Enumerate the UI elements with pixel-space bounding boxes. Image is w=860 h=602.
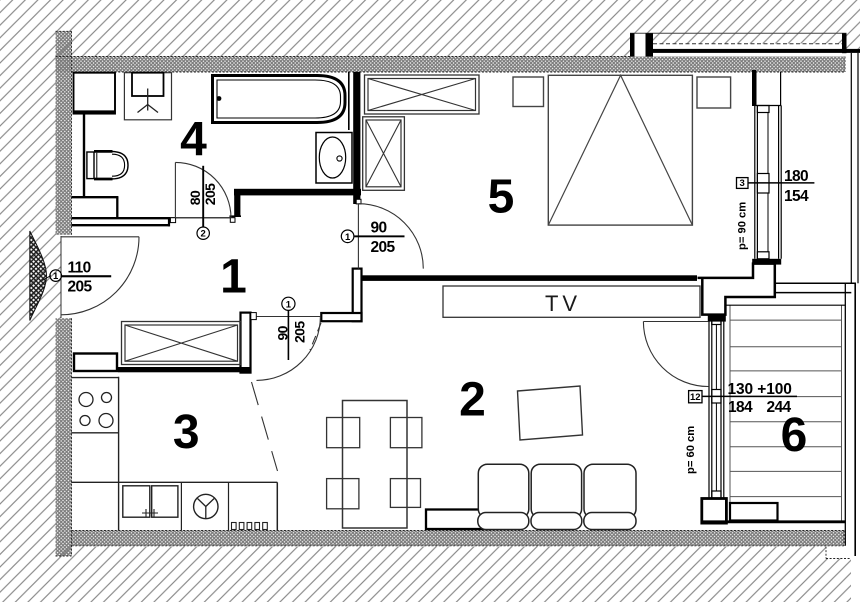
svg-text:2: 2 — [459, 374, 486, 427]
svg-text:205: 205 — [202, 183, 218, 205]
svg-text:p= 60 cm: p= 60 cm — [685, 426, 697, 474]
svg-text:1: 1 — [220, 250, 247, 303]
svg-text:1: 1 — [345, 232, 351, 243]
svg-text:184: 184 — [728, 399, 753, 416]
svg-text:3: 3 — [740, 178, 745, 189]
svg-text:205: 205 — [371, 239, 396, 256]
svg-text:1: 1 — [53, 271, 59, 282]
svg-text:TV: TV — [545, 291, 581, 316]
svg-text:80: 80 — [187, 190, 203, 205]
svg-text:2: 2 — [201, 229, 206, 240]
svg-text:205: 205 — [292, 321, 308, 343]
svg-text:p= 90 cm: p= 90 cm — [737, 202, 749, 250]
svg-text:110: 110 — [68, 260, 91, 277]
svg-text:12: 12 — [690, 392, 701, 403]
svg-text:1: 1 — [286, 299, 292, 310]
svg-text:154: 154 — [784, 188, 809, 205]
svg-text:6: 6 — [781, 409, 808, 462]
svg-text:205: 205 — [68, 279, 93, 296]
svg-text:90: 90 — [371, 220, 387, 237]
svg-text:4: 4 — [180, 113, 207, 166]
svg-text:3: 3 — [173, 406, 200, 459]
svg-text:5: 5 — [488, 171, 515, 224]
